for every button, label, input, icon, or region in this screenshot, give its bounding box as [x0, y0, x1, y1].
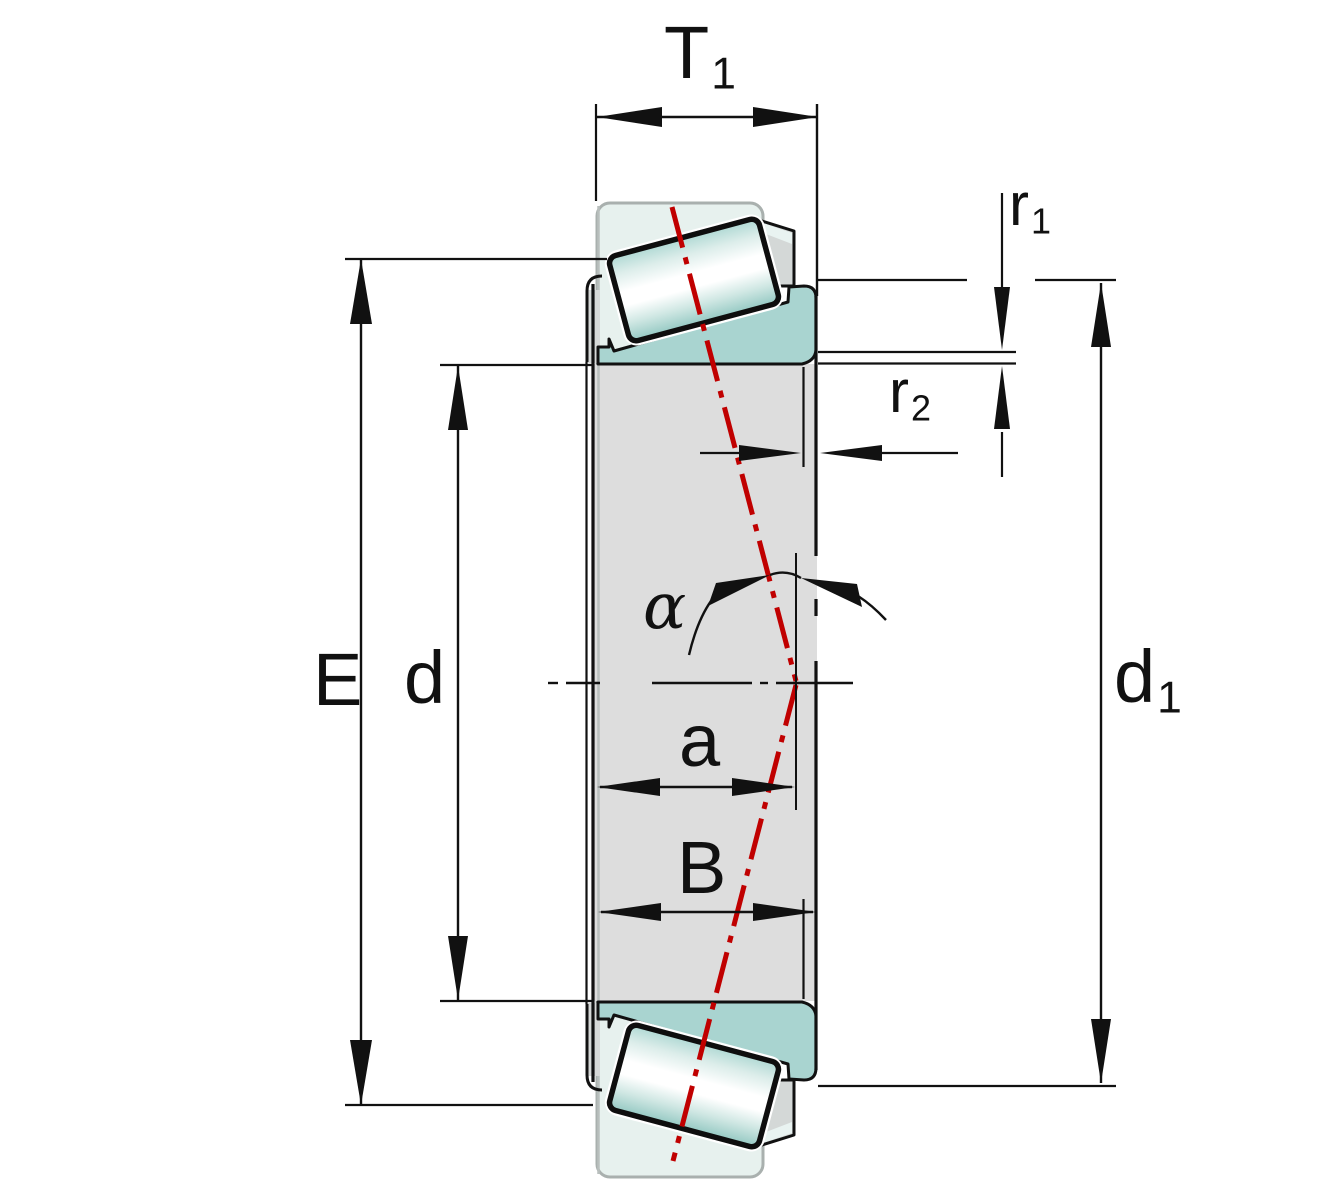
- label-d-main: d: [404, 641, 445, 715]
- label-d1-main: d: [1114, 640, 1155, 714]
- dim-d1: [818, 280, 1116, 1086]
- label-T1-main: T: [664, 16, 709, 90]
- bearing-dimension-diagram: T1 r1 r2 E d d1 α a B: [0, 0, 1330, 1200]
- label-T1: T1: [664, 16, 736, 90]
- bearing-assembly: [587, 203, 818, 1177]
- label-r1-main: r: [1009, 175, 1029, 235]
- label-r2: r2: [889, 362, 931, 422]
- label-r2-main: r: [889, 362, 909, 422]
- label-a-main: a: [679, 704, 720, 778]
- label-r1: r1: [1009, 175, 1051, 235]
- label-r2-sub: 2: [911, 391, 931, 427]
- label-E-main: E: [313, 643, 362, 717]
- label-d1-sub: 1: [1157, 677, 1182, 721]
- label-a: a: [679, 704, 720, 778]
- label-E: E: [313, 643, 362, 717]
- label-B: B: [677, 831, 726, 905]
- label-alpha: α: [643, 575, 686, 639]
- label-r1-sub: 1: [1031, 204, 1051, 240]
- label-T1-sub: 1: [711, 53, 736, 97]
- label-d1: d1: [1114, 640, 1182, 714]
- label-B-main: B: [677, 831, 726, 905]
- dim-r1: [818, 193, 1016, 477]
- label-d: d: [404, 641, 445, 715]
- label-alpha-main: α: [643, 575, 686, 639]
